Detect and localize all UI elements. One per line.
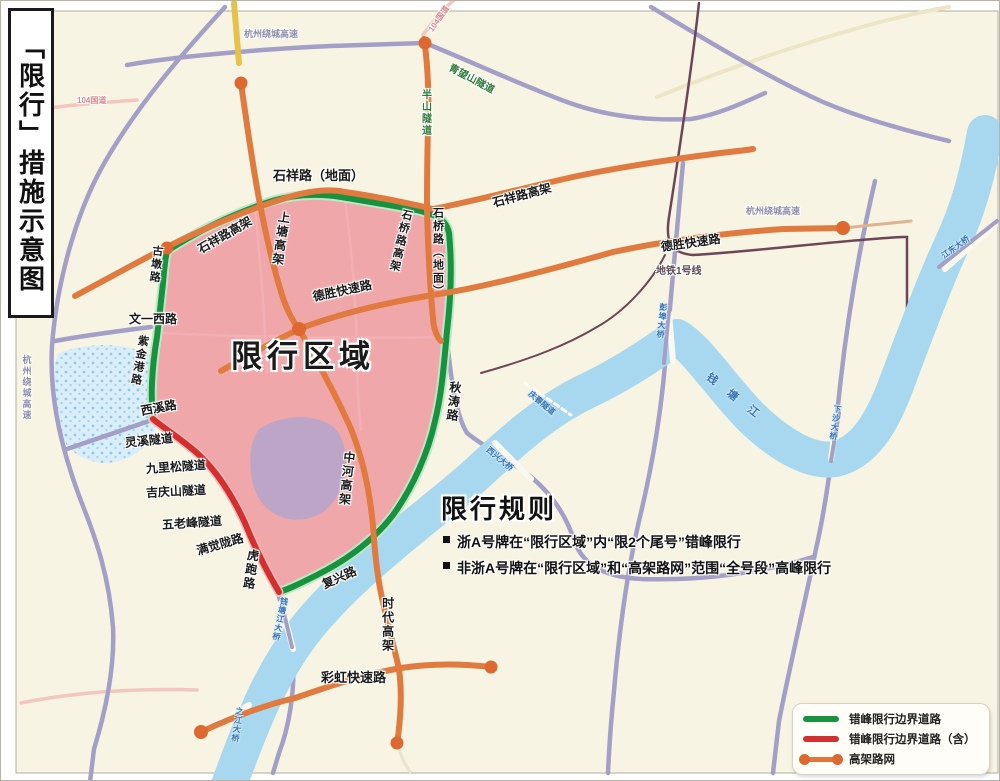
legend-label: 错峰限行边界道路 [849, 711, 941, 727]
label-ring-expressway-top: 杭州绕城高速 [244, 30, 298, 39]
label-ring-expressway-east: 杭州绕城高速 [746, 207, 800, 216]
road-label-caihong-expressway: 彩虹快速路 [321, 671, 386, 685]
map-title-box: 「限行」措施示意图 [8, 8, 54, 318]
legend-label: 错峰限行边界道路（含） [849, 731, 976, 747]
legend-row-green: 错峰限行边界道路 [803, 711, 979, 727]
map-title: 「限行」措施示意图 [13, 33, 50, 294]
green-line-swatch-icon [803, 716, 839, 722]
road-label-shixiang-dimian: 石祥路（地面） [273, 169, 364, 183]
bullet-square-icon [443, 536, 450, 543]
road-label-banshan-tunnel: 半山隧道 [419, 89, 430, 137]
restriction-rules: 限行规则 浙A号牌在“限行区域”内“限2个尾号”错峰限行 非浙A号牌在“限行区域… [441, 489, 831, 578]
legend-row-red: 错峰限行边界道路（含） [803, 731, 979, 747]
red-line-swatch-icon [803, 736, 839, 742]
label-ring-expressway-west: 杭州绕城高速 [21, 355, 30, 421]
rule-item-zhe-a: 浙A号牌在“限行区域”内“限2个尾号”错峰限行 [441, 532, 831, 552]
map-graphics [1, 1, 1000, 781]
rules-title: 限行规则 [441, 489, 831, 526]
bullet-square-icon [443, 562, 450, 569]
legend-row-orange: 高架路网 [803, 751, 979, 767]
road-label-jiqingshan-tunnel: 吉庆山隧道 [146, 484, 207, 500]
road-label-shiqiao-dimian: 石桥路（地面） [431, 207, 443, 298]
map-legend: 错峰限行边界道路 错峰限行边界道路（含） 高架路网 [792, 703, 990, 775]
orange-line-swatch-icon [803, 757, 839, 762]
label-g104-west: 104国道 [77, 97, 106, 105]
traffic-restriction-map: 石祥路（地面） 石祥路高架 石祥路高架 上塘高架 石桥路高架 石桥路（地面） 德… [0, 0, 1000, 781]
rule-item-non-zhe-a: 非浙A号牌在“限行区域”和“高架路网”范围“全号段”高峰限行 [441, 558, 831, 578]
road-label-wenyixilu: 文一西路 [129, 313, 177, 326]
restricted-zone-label: 限行区域 [231, 341, 375, 374]
rule-text: 非浙A号牌在“限行区域”和“高架路网”范围“全号段”高峰限行 [457, 560, 831, 576]
rule-text: 浙A号牌在“限行区域”内“限2个尾号”错峰限行 [457, 534, 741, 550]
label-metro-line-1: 地铁1号线 [656, 267, 702, 278]
road-label-shidai-gaojia: 时代高架 [381, 597, 394, 653]
legend-label: 高架路网 [849, 751, 895, 767]
